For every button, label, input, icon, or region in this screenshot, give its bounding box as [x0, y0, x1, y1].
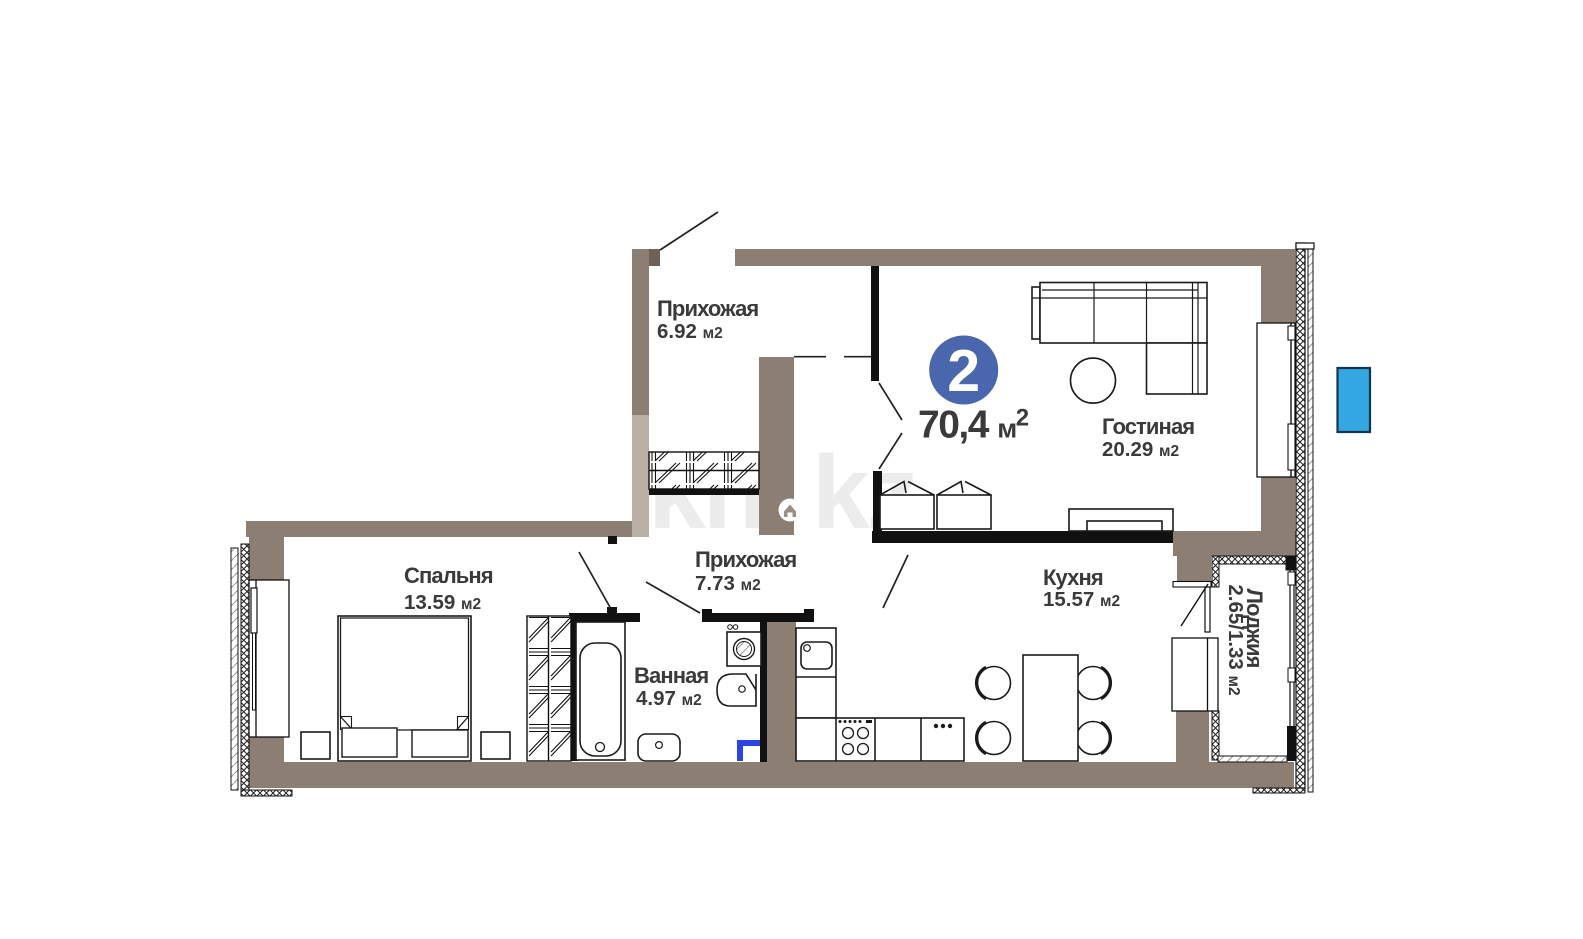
svg-text:Прихожая: Прихожая	[657, 296, 758, 321]
svg-text:2: 2	[947, 338, 980, 404]
svg-text:Спальня: Спальня	[404, 563, 493, 588]
svg-text:Кухня: Кухня	[1043, 565, 1103, 590]
svg-text:Прихожая: Прихожая	[695, 547, 796, 572]
svg-text:Ванная: Ванная	[634, 663, 708, 688]
svg-text:Гостиная: Гостиная	[1102, 414, 1194, 439]
